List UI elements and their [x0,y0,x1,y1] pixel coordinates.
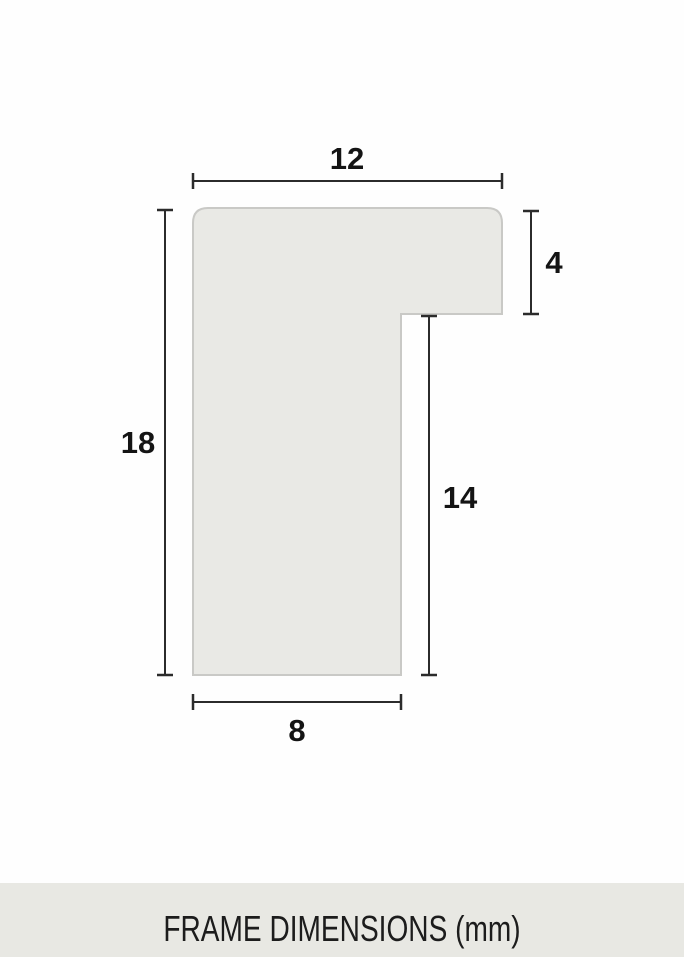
footer-caption-bar: FRAME DIMENSIONS (mm) [0,883,684,957]
dimension-inner-depth: 14 [421,316,478,675]
frame-profile-diagram: 12 18 4 14 8 [0,0,684,883]
dimension-right-lip-height: 4 [523,211,563,314]
dimension-value-top-width: 12 [330,141,364,176]
dimension-value-inner-depth: 14 [443,480,478,515]
frame-dimensions-caption: FRAME DIMENSIONS (mm) [163,911,520,947]
dimension-value-right-lip-height: 4 [545,245,563,280]
frame-profile-shape [193,208,502,675]
dimension-bottom-width: 8 [193,694,401,748]
dimension-value-left-height: 18 [121,425,155,460]
dimension-value-bottom-width: 8 [288,713,305,748]
dimension-left-height: 18 [121,210,173,675]
frame-dimensions-page: 12 18 4 14 8 [0,0,684,957]
dimension-top-width: 12 [193,141,502,189]
